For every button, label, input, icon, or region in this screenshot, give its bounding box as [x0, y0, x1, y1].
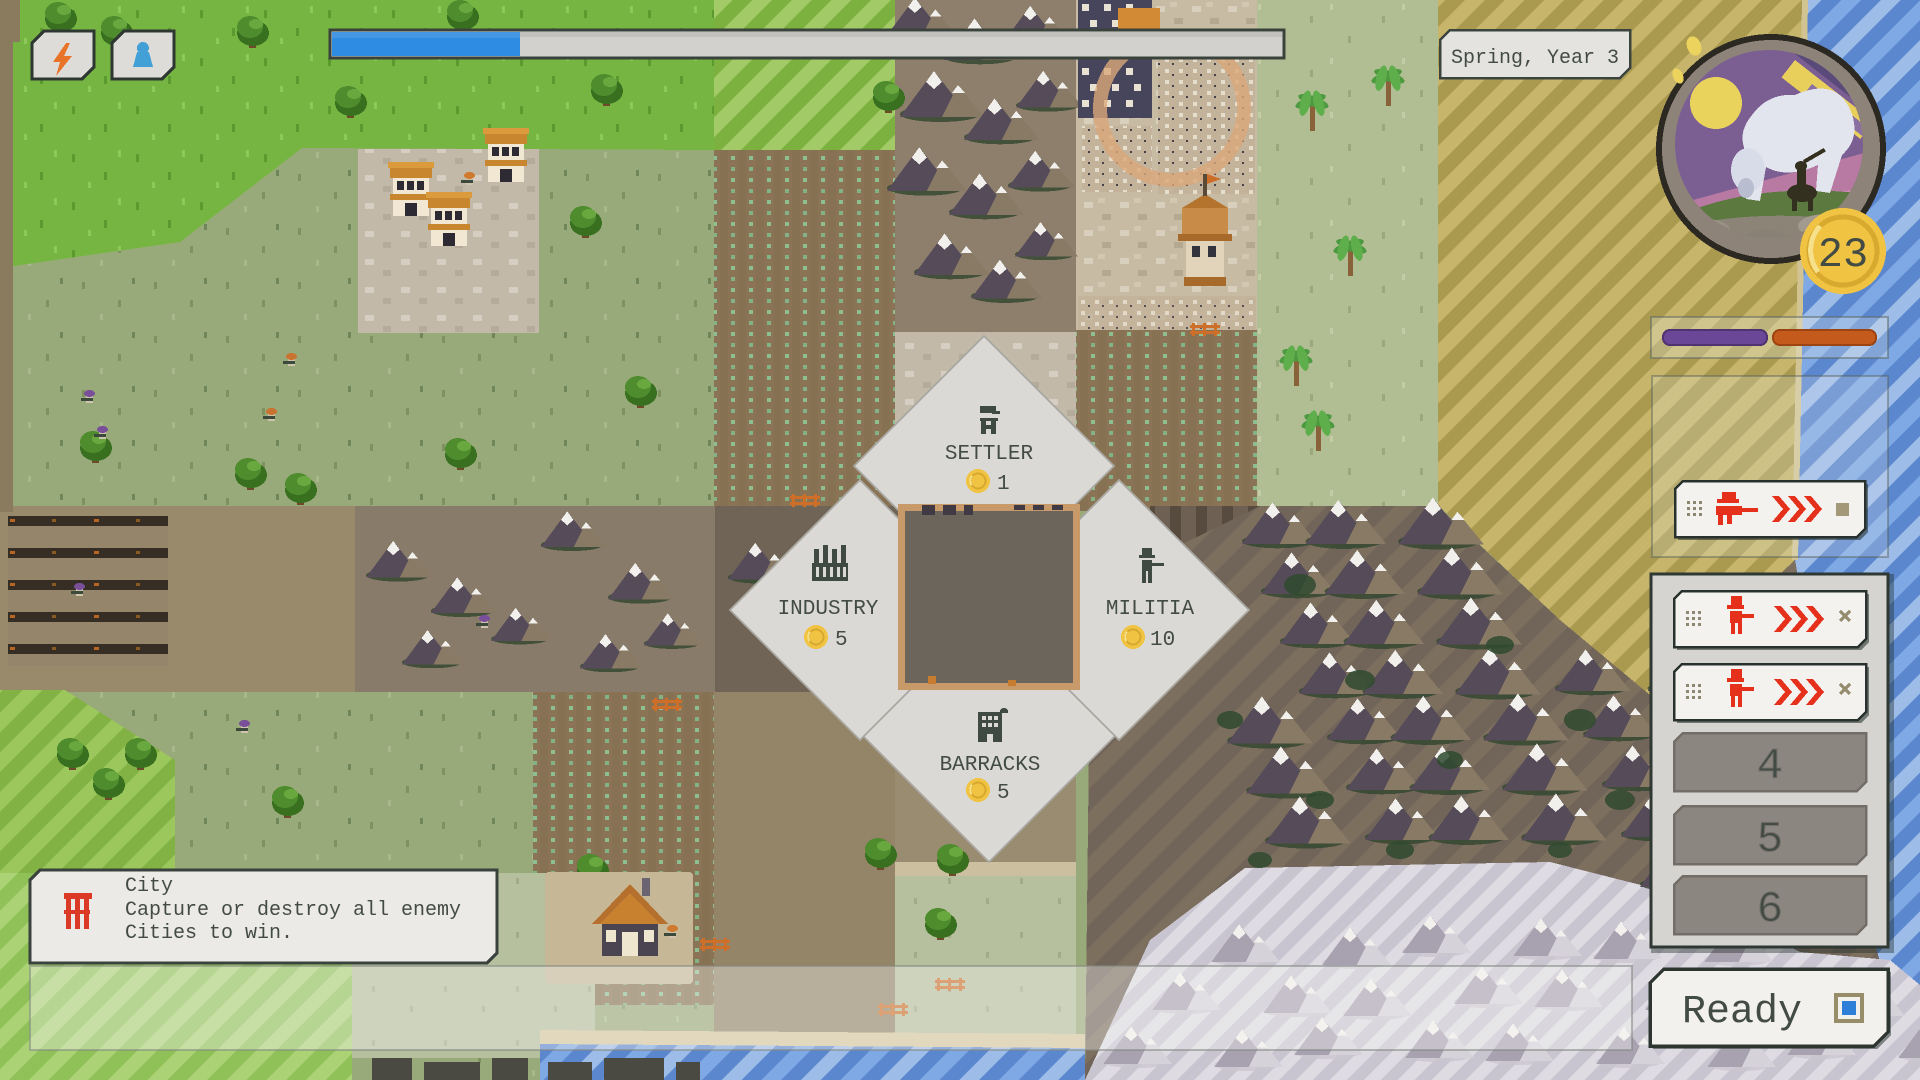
- svg-text:5: 5: [1757, 815, 1783, 865]
- svg-text:23: 23: [1818, 231, 1868, 279]
- svg-text:4: 4: [1757, 742, 1783, 792]
- svg-text:MILITIA: MILITIA: [1106, 598, 1195, 621]
- svg-text:Cities to win.: Cities to win.: [125, 922, 293, 945]
- svg-text:Capture or destroy all enemy: Capture or destroy all enemy: [125, 899, 461, 922]
- svg-text:BARRACKS: BARRACKS: [940, 754, 1041, 777]
- svg-text:6: 6: [1757, 885, 1783, 935]
- svg-text:Ready: Ready: [1682, 990, 1802, 1035]
- svg-text:5: 5: [835, 629, 848, 652]
- svg-text:1: 1: [997, 473, 1010, 496]
- svg-text:City: City: [125, 875, 173, 898]
- svg-text:INDUSTRY: INDUSTRY: [778, 598, 879, 621]
- svg-text:10: 10: [1150, 629, 1175, 652]
- svg-text:5: 5: [997, 782, 1010, 805]
- svg-text:Spring, Year 3: Spring, Year 3: [1451, 47, 1619, 70]
- svg-text:SETTLER: SETTLER: [945, 443, 1034, 466]
